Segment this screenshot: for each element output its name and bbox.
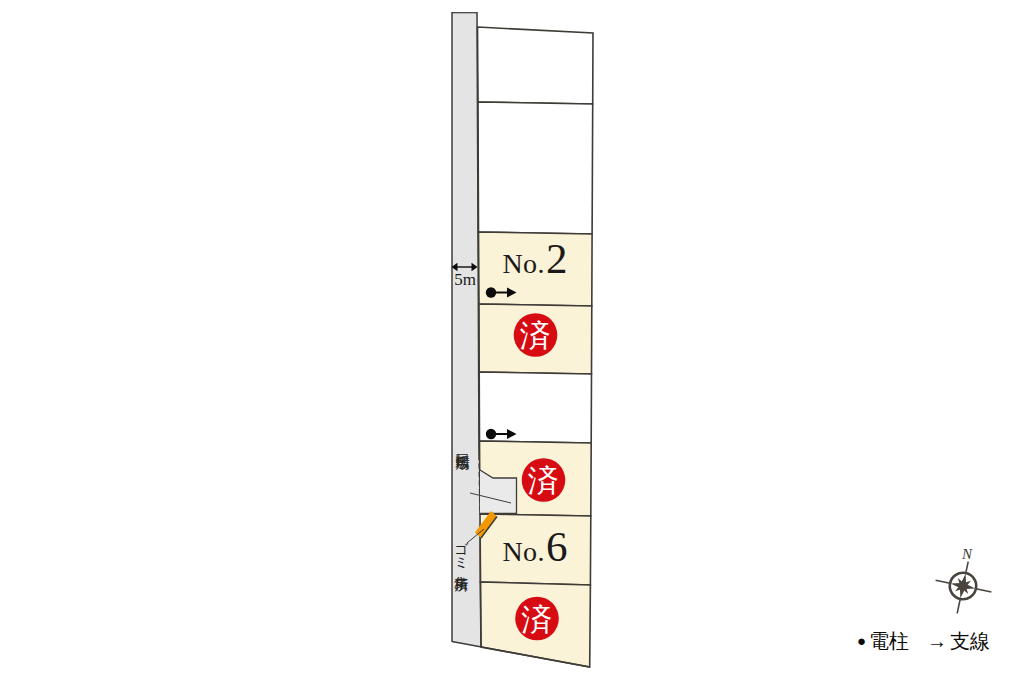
utility-pole-legend-label: 電柱: [869, 628, 909, 655]
sold-badge-lot-4: 済: [514, 313, 558, 357]
lot-1-parcel: [478, 27, 594, 104]
lot-no6-label: No.6: [478, 522, 592, 582]
map-legend: ● 電柱 → 支線: [857, 628, 990, 655]
sold-badge-lot-6: 済: [522, 458, 566, 502]
garbage-station-label: ゴミ集積所: [454, 531, 468, 568]
road-width-label: 5m: [447, 270, 483, 290]
lot-5-parcel: [479, 372, 591, 443]
support-wire-legend-label: 支線: [950, 628, 990, 655]
compass-north-label: N: [962, 546, 972, 563]
utility-pole-legend-icon: ●: [857, 633, 866, 650]
compass-rose-icon: [930, 556, 997, 620]
lot-no6-number: 6: [546, 522, 568, 571]
sold-badge-lot-8: 済: [515, 597, 559, 641]
lot-2-parcel: [478, 102, 593, 234]
lot-no2-prefix: No.: [502, 248, 545, 280]
turning-plaza-label: 回転広場: [455, 442, 469, 446]
lot-no2-label: No.2: [478, 234, 592, 294]
lot-no6-prefix: No.: [502, 536, 545, 568]
lot-no2-number: 2: [546, 234, 568, 283]
site-plan-page: No.2 No.6 済 済 済 5m 回転広場 ゴミ集積所 N ● 電柱 → 支…: [0, 0, 1024, 682]
support-wire-legend-icon: →: [927, 630, 947, 653]
